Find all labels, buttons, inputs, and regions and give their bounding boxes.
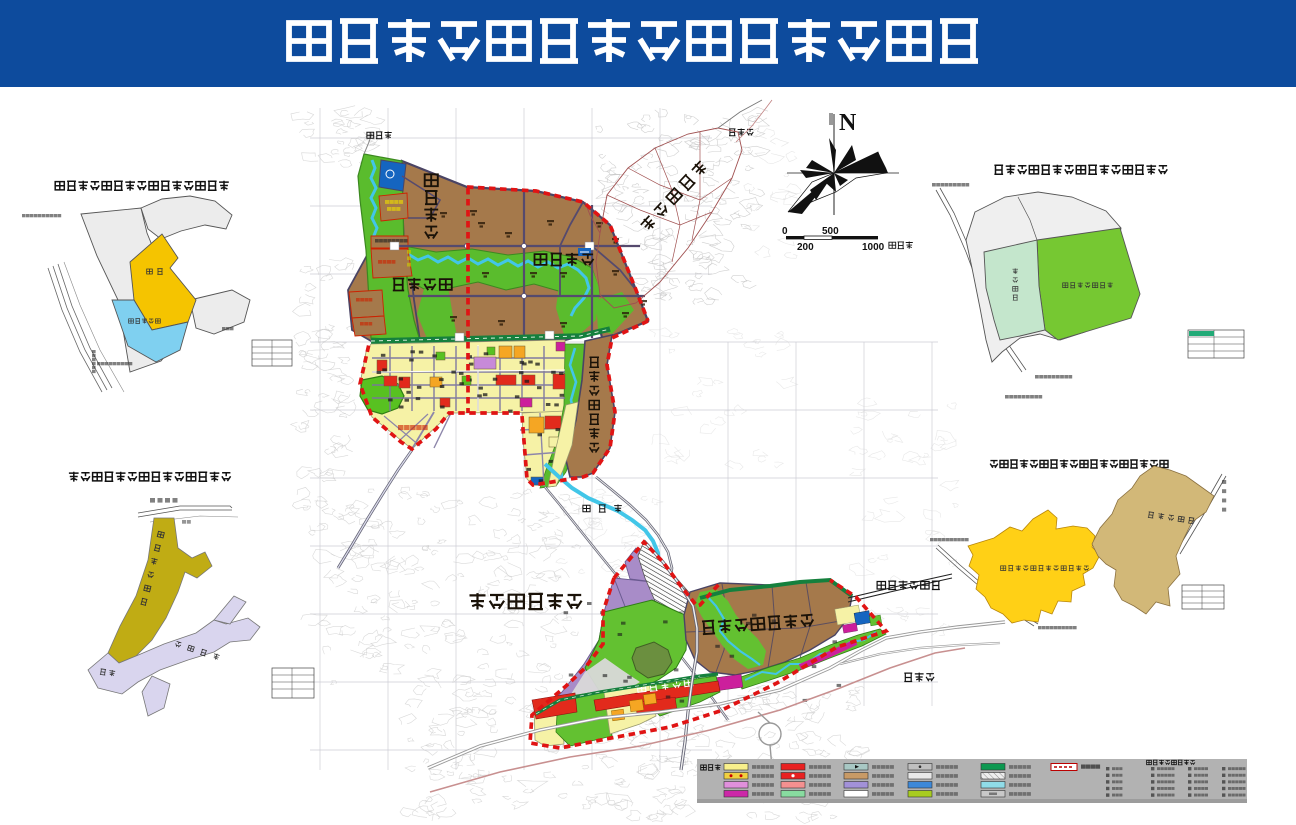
svg-text:N: N xyxy=(839,110,857,136)
svg-text:0: 0 xyxy=(782,226,788,237)
svg-text:1000: 1000 xyxy=(862,242,885,253)
svg-text:500: 500 xyxy=(822,226,839,237)
svg-text:200: 200 xyxy=(797,242,814,253)
